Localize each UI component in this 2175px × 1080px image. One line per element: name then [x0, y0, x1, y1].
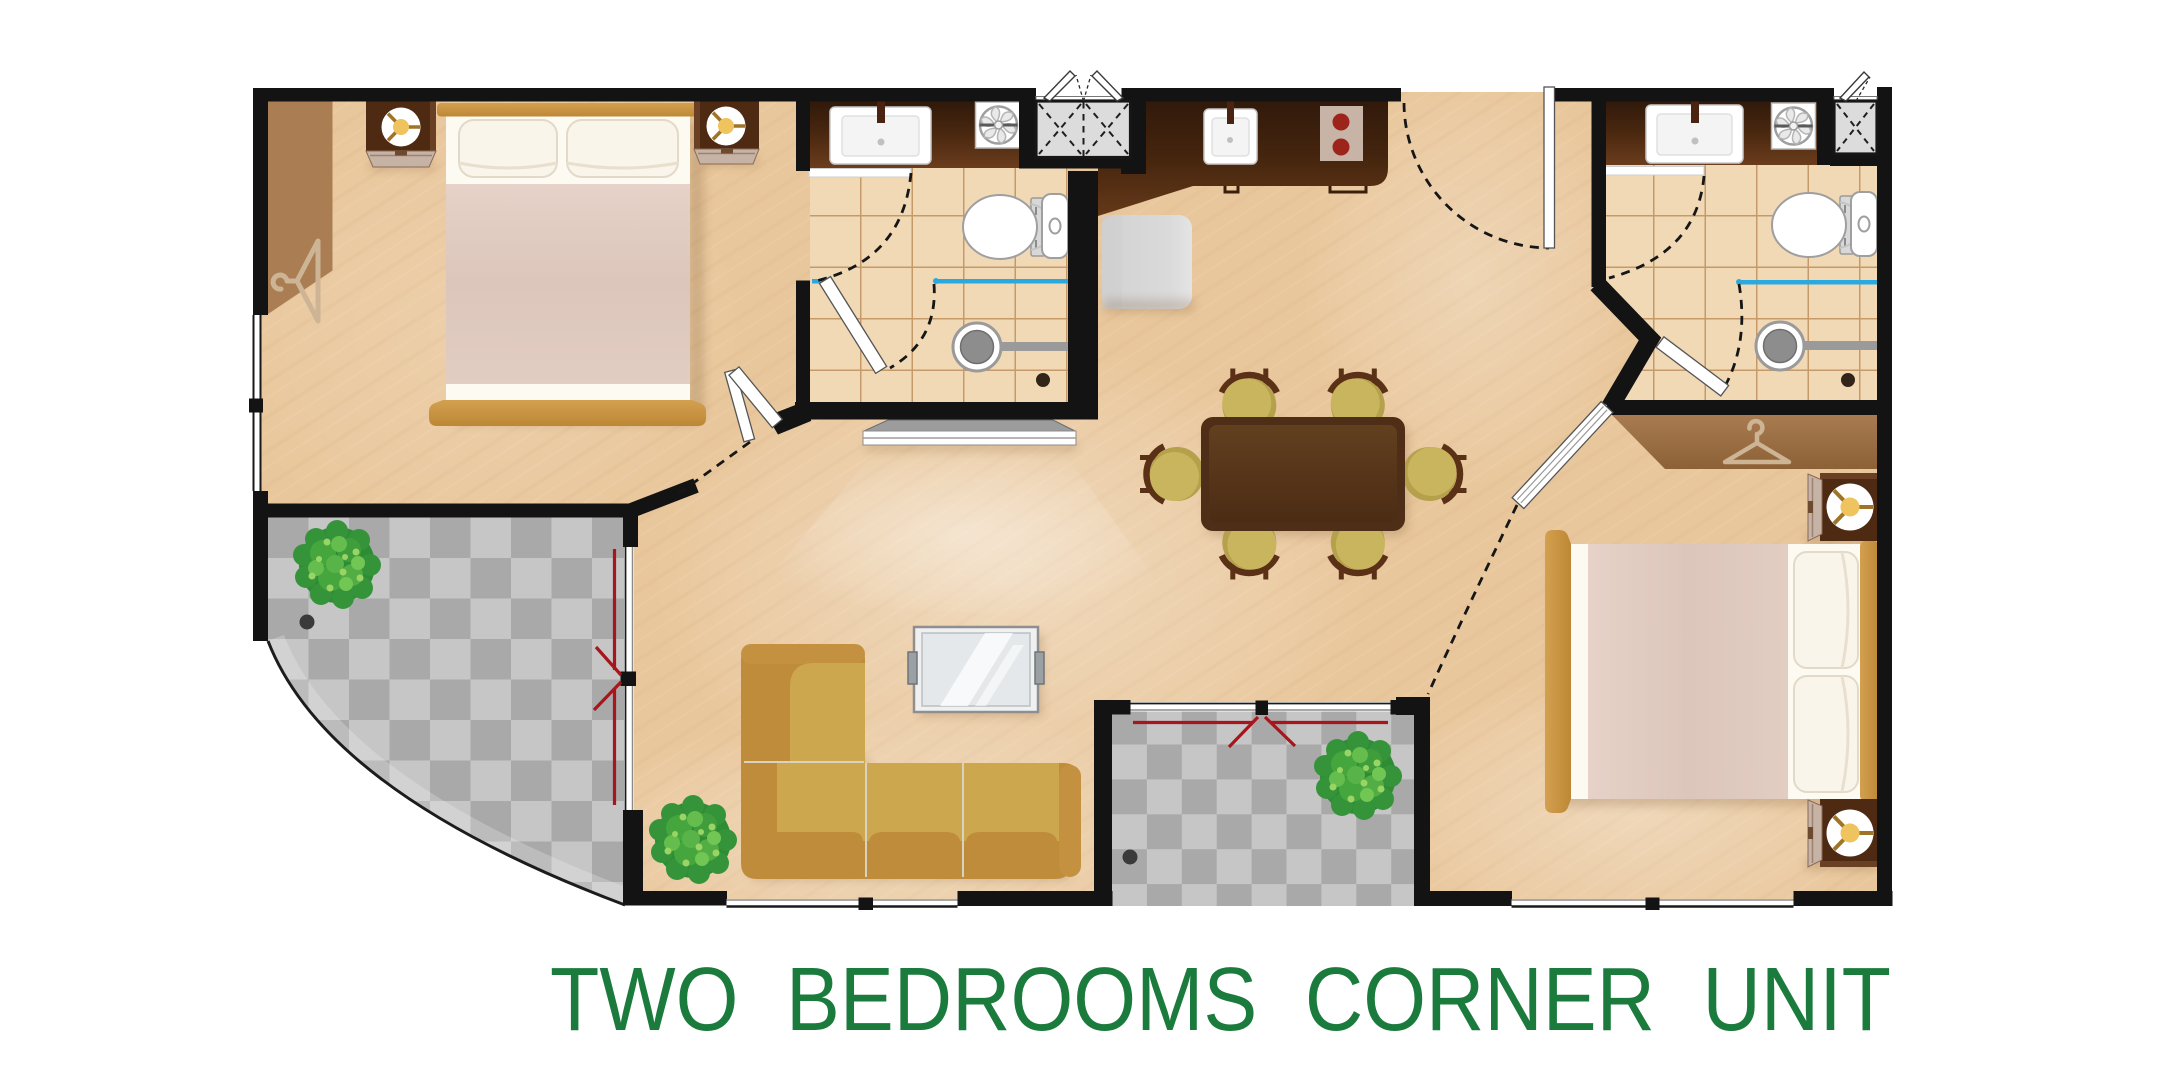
- svg-text:TWO BEDROOMS CORNER UNIT: TWO BEDROOMS CORNER UNIT: [550, 950, 1891, 1050]
